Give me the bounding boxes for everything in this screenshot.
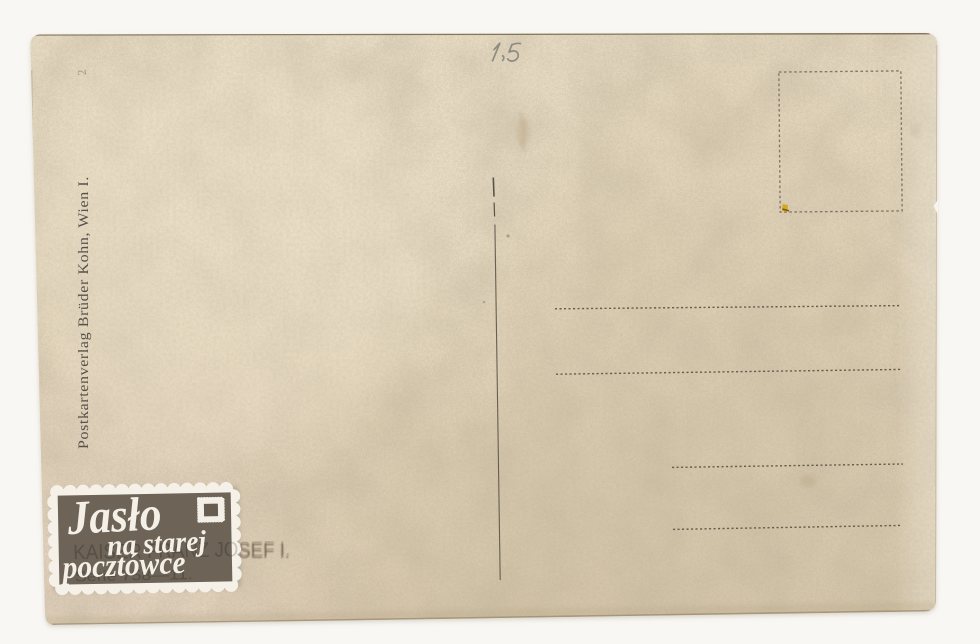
svg-text:pocztówce: pocztówce xyxy=(59,544,186,586)
svg-text:Postkartenverlag Brüder Kohn,: Postkartenverlag Brüder Kohn, Wien I. xyxy=(76,176,92,449)
